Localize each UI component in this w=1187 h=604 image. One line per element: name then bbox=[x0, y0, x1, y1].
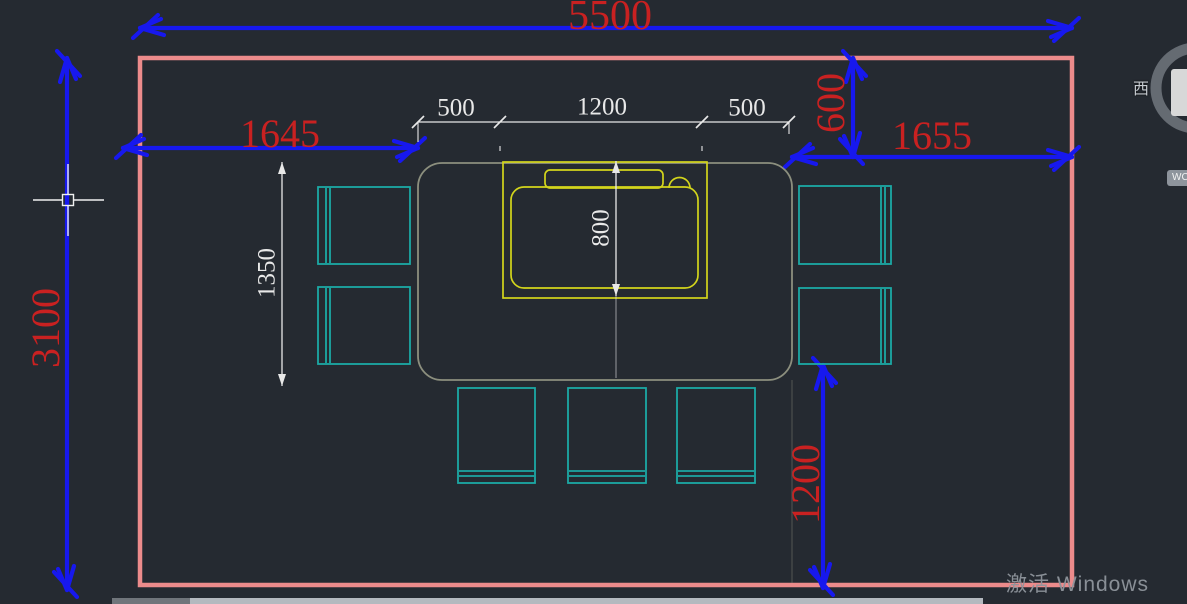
dim-text-offset-left[interactable]: 1645 bbox=[240, 114, 320, 154]
chair-left-2[interactable] bbox=[318, 287, 410, 364]
dim-line-machine-depth[interactable] bbox=[612, 161, 620, 378]
dim-text-machine-depth[interactable]: 800 bbox=[589, 209, 614, 247]
dim-text-room-width[interactable]: 5500 bbox=[568, 0, 652, 37]
dim-text-chair-zone[interactable]: 1350 bbox=[255, 248, 280, 298]
wcs-button[interactable]: WC bbox=[1167, 170, 1187, 186]
scrollbar-track[interactable] bbox=[190, 598, 983, 604]
dim-text-gap-top-right[interactable]: 600 bbox=[811, 73, 851, 133]
dim-text-gap-bottom-right[interactable]: 1200 bbox=[786, 444, 826, 524]
chair-bottom-2[interactable] bbox=[568, 388, 646, 483]
chair-left-1[interactable] bbox=[318, 187, 410, 264]
dim-text-machine-gap-right[interactable]: 500 bbox=[728, 96, 766, 121]
viewcube-west-label[interactable]: 西 bbox=[1133, 82, 1149, 98]
chair-bottom-1[interactable] bbox=[458, 388, 535, 483]
drawing-canvas[interactable] bbox=[0, 0, 1187, 604]
dim-text-machine-width[interactable]: 1200 bbox=[577, 95, 627, 120]
chair-right-2[interactable] bbox=[799, 288, 891, 364]
scrollbar-thumb[interactable] bbox=[112, 598, 190, 604]
cad-viewport: 5500 3100 1645 1655 600 1200 500 1200 50… bbox=[0, 0, 1187, 604]
dim-text-machine-gap-left[interactable]: 500 bbox=[437, 96, 475, 121]
dining-table[interactable] bbox=[418, 163, 792, 380]
windows-activation-watermark: 激活 Windows bbox=[1006, 573, 1149, 596]
viewcube-face[interactable] bbox=[1171, 69, 1187, 116]
chair-right-1[interactable] bbox=[799, 186, 891, 264]
dim-text-offset-right[interactable]: 1655 bbox=[892, 116, 972, 156]
dim-text-room-height[interactable]: 3100 bbox=[26, 288, 66, 368]
chair-bottom-3[interactable] bbox=[677, 388, 755, 483]
